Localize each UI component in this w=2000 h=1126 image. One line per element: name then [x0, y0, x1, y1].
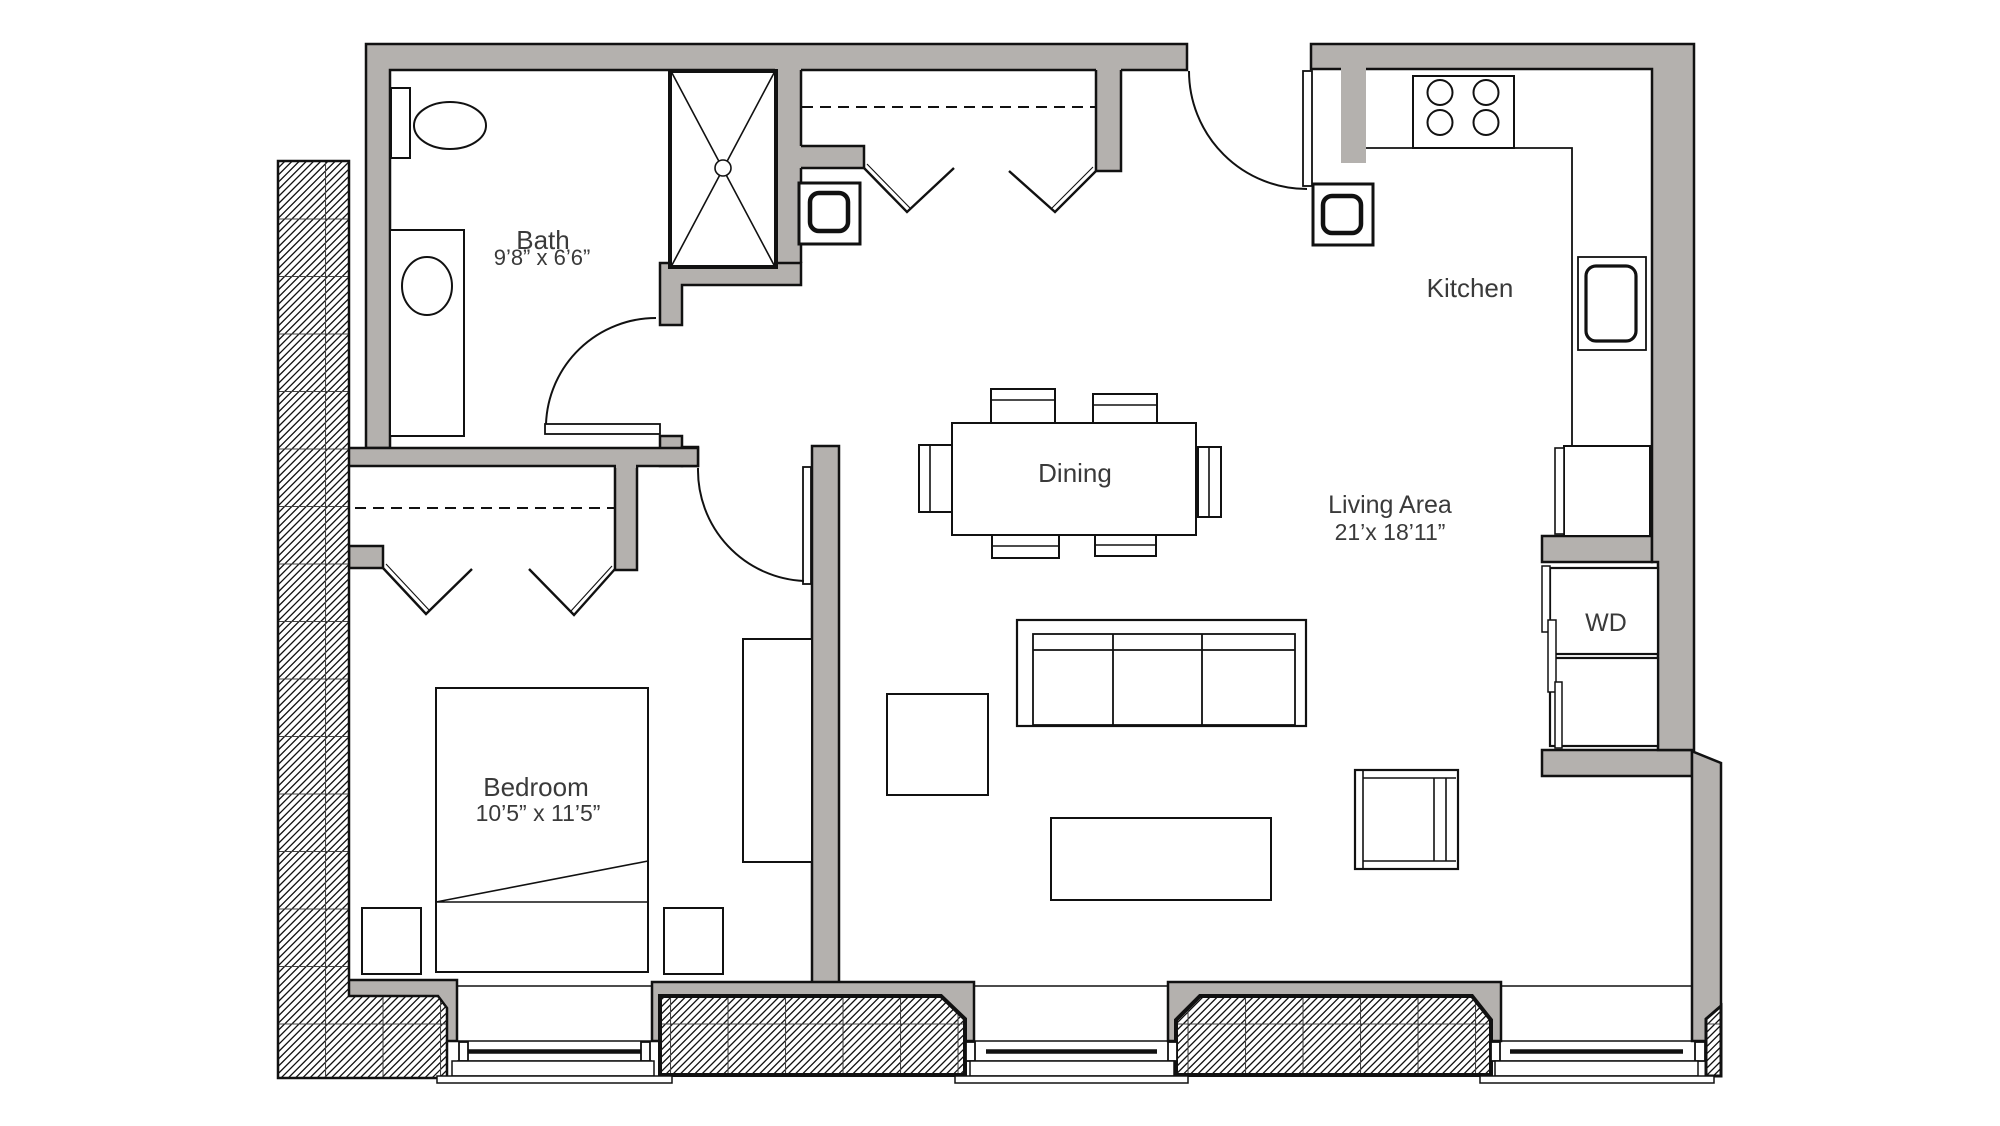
svg-text:9’8” x 6’6”: 9’8” x 6’6”	[494, 245, 591, 270]
svg-text:21’x 18’11”: 21’x 18’11”	[1335, 519, 1446, 545]
svg-text:Kitchen: Kitchen	[1427, 273, 1514, 303]
svg-text:Living Area: Living Area	[1328, 491, 1452, 519]
svg-text:WD: WD	[1585, 609, 1627, 637]
svg-text:Dining: Dining	[1038, 458, 1112, 488]
svg-text:10’5” x 11’5”: 10’5” x 11’5”	[476, 800, 601, 826]
svg-text:Bedroom: Bedroom	[483, 772, 589, 802]
